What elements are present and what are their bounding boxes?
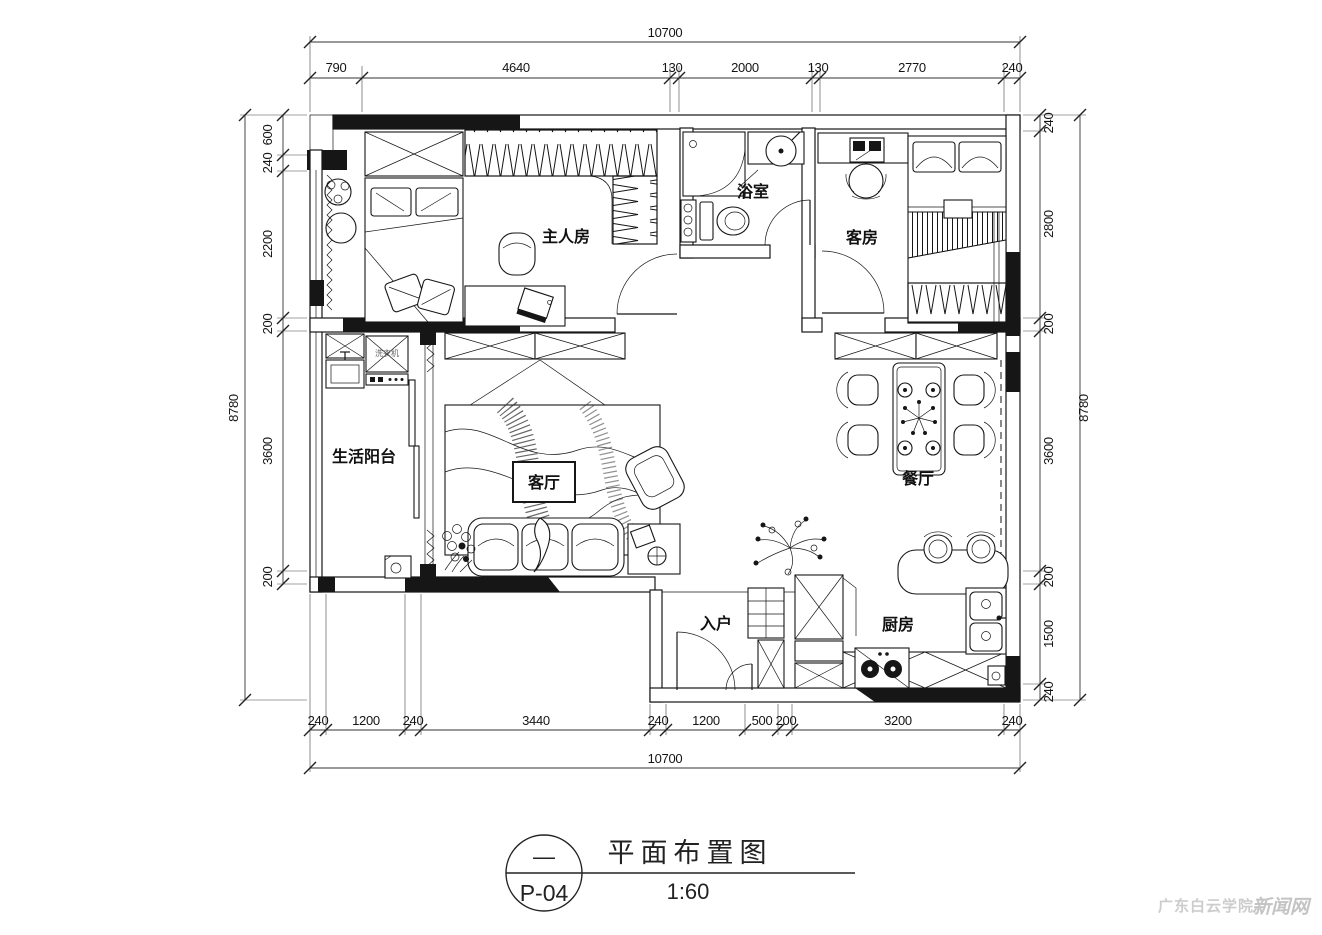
title-sheet-number: P-04 [520, 880, 569, 906]
dim-right-seg: 240 [1041, 113, 1056, 134]
dim-top-seg: 130 [662, 60, 683, 75]
dim-bottom-seg: 200 [776, 713, 797, 728]
dim-left-seg: 200 [260, 567, 275, 588]
drawing-scale: 1:60 [667, 879, 710, 904]
room-master-bedroom [325, 130, 677, 326]
drawing-title: 平面布置图 [608, 838, 773, 868]
label-kitchen: 厨房 [882, 615, 914, 634]
dim-top-total: 10700 [648, 25, 683, 40]
dim-right-seg: 200 [1041, 314, 1056, 335]
dim-bottom-seg: 1200 [692, 713, 720, 728]
dim-left-seg: 600 [260, 125, 275, 146]
dim-left-seg: 240 [260, 153, 275, 174]
dim-top-seg: 790 [326, 60, 347, 75]
label-bathroom: 浴室 [737, 182, 769, 201]
plant-entry [754, 517, 827, 576]
dim-bottom-seg: 500 [752, 713, 773, 728]
dim-left-seg: 3600 [260, 437, 275, 465]
label-entry: 入户 [700, 614, 732, 633]
dining-chair [954, 422, 995, 458]
watermark-text-1: 广东白云学院 [1158, 897, 1254, 915]
dim-bottom-seg: 3200 [884, 713, 912, 728]
label-balcony: 生活阳台 [332, 447, 396, 466]
dining-chair [837, 422, 878, 458]
washer-label: 洗衣机 [375, 348, 399, 358]
title-revision: — [533, 844, 555, 869]
label-master-bedroom: 主人房 [542, 227, 590, 246]
room-living [409, 336, 688, 576]
dining-chair [837, 372, 878, 408]
dim-right-seg: 1500 [1041, 620, 1056, 648]
dim-left-seg: 2200 [260, 230, 275, 258]
floor-plan-drawing: 洗衣机 [0, 0, 1322, 935]
label-guest-room: 客房 [846, 228, 878, 247]
dim-left-total: 8780 [226, 394, 241, 422]
dimension-chain-left: 600 240 2200 200 3600 200 8780 [226, 109, 307, 706]
dim-bottom-seg: 240 [1002, 713, 1023, 728]
dim-top-seg: 2000 [731, 60, 759, 75]
label-dining-room: 餐厅 [901, 469, 934, 488]
floor-plan-page: 洗衣机 [0, 0, 1322, 935]
dim-top-seg: 130 [808, 60, 829, 75]
dim-bottom-seg: 1200 [352, 713, 380, 728]
dim-bottom-seg: 240 [403, 713, 424, 728]
dimension-chain-top: 10700 790 4640 130 2000 130 2770 240 [304, 25, 1026, 112]
dim-bottom-total: 10700 [648, 751, 683, 766]
watermark-text-2: 新闻网 [1252, 896, 1312, 918]
dim-right-seg: 3600 [1041, 437, 1056, 465]
dim-right-seg: 200 [1041, 567, 1056, 588]
title-block: — P-04 平面布置图 1:60 [506, 835, 855, 911]
dimension-chain-right: 240 2800 200 3600 200 1500 240 8780 [1023, 109, 1091, 706]
dim-right-total: 8780 [1076, 394, 1091, 422]
dim-top-seg: 240 [1002, 60, 1023, 75]
label-living-room: 客厅 [528, 473, 560, 492]
dim-bottom-seg: 240 [648, 713, 669, 728]
dining-chair [954, 372, 995, 408]
dim-bottom-seg: 3440 [522, 713, 550, 728]
dim-left-seg: 200 [260, 314, 275, 335]
dim-bottom-seg: 240 [308, 713, 329, 728]
watermark: 广东白云学院 新闻网 [1158, 896, 1312, 918]
dim-top-seg: 2770 [898, 60, 926, 75]
dim-top-seg: 4640 [502, 60, 530, 75]
dim-right-seg: 2800 [1041, 210, 1056, 238]
room-guest [818, 133, 1006, 323]
dim-right-seg: 240 [1041, 682, 1056, 703]
